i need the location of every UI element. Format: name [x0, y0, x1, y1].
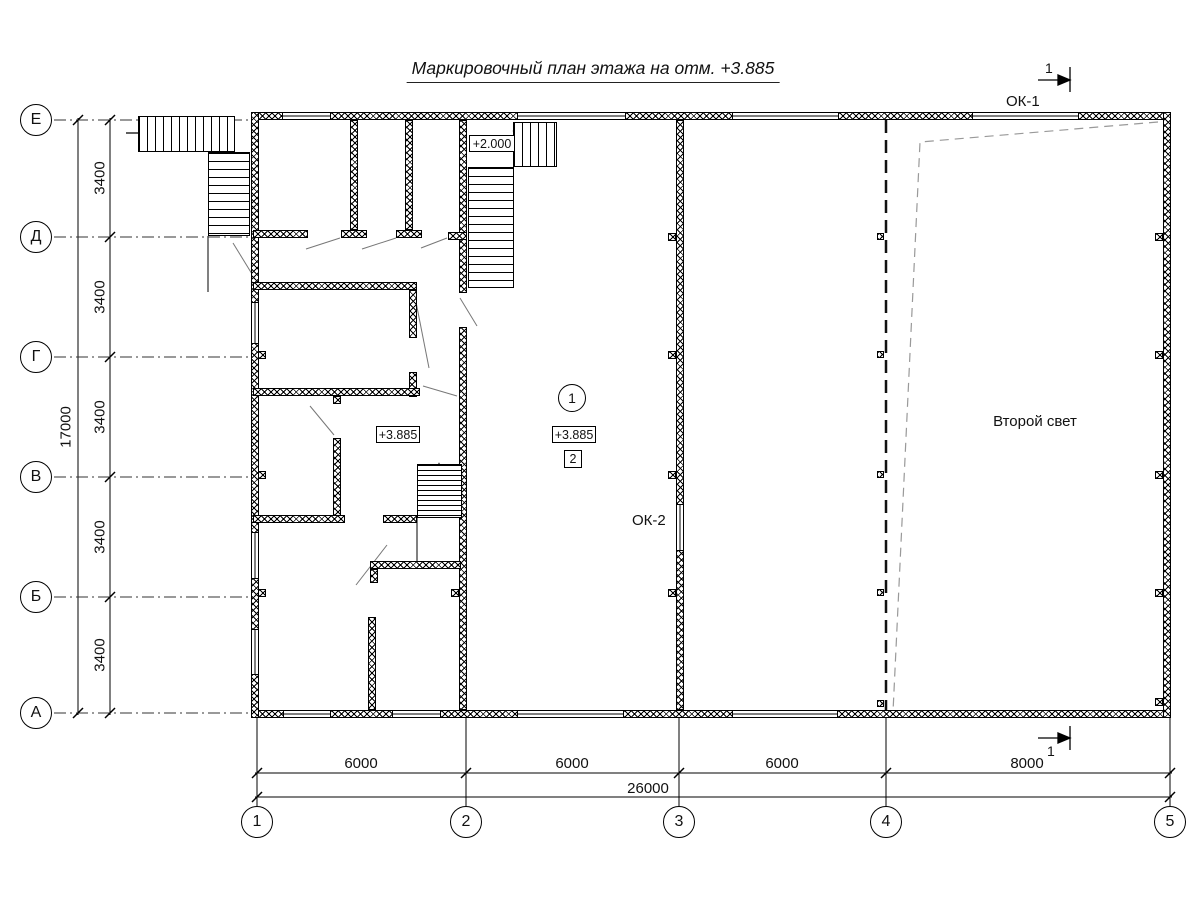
central-stair-flight: [417, 464, 462, 518]
partition-wall: [333, 438, 341, 516]
wall-segment: [253, 230, 308, 238]
axis-row-bubble-d: Д: [20, 221, 52, 253]
window-opening: [251, 630, 259, 674]
column-flange: [668, 233, 676, 241]
second-light-label: Второй свет: [993, 413, 1077, 430]
section-number-top: 1: [1045, 60, 1053, 76]
window-ok1-opening: [973, 112, 1078, 120]
window-opening: [518, 710, 623, 718]
wall-segment: [1078, 112, 1171, 120]
room-number-box: 2: [564, 450, 582, 468]
room-number-circle: 1: [558, 384, 586, 412]
wall-stub: [396, 230, 422, 238]
window-opening: [518, 112, 625, 120]
wall-segment: [459, 327, 467, 710]
window-opening: [283, 112, 330, 120]
section-mark-top: [1038, 67, 1070, 92]
level-label-2000: +2.000: [469, 135, 515, 152]
wall-segment: [330, 112, 518, 120]
axis-row-bubble-b: Б: [20, 581, 52, 613]
page-title: Маркировочный план этажа на отм. +3.885: [407, 58, 780, 83]
wall-segment: [837, 710, 1171, 718]
column-flange: [1155, 698, 1163, 706]
dim-row-spacing: 3400: [92, 280, 109, 313]
axis-col-bubble-3: 3: [663, 806, 695, 838]
partition-wall: [370, 561, 461, 569]
wall-segment: [676, 550, 684, 710]
wall-segment: [251, 578, 259, 630]
column-flange: [258, 351, 266, 359]
partition-wall: [405, 120, 413, 230]
column-flange: [451, 589, 459, 597]
wall-segment: [251, 343, 259, 533]
wall-stub: [370, 569, 378, 583]
wall-segment: [625, 112, 733, 120]
partition-wall: [253, 282, 417, 290]
level-label-3885-center: +3.885: [552, 426, 596, 443]
column-flange: [877, 589, 884, 596]
floor-plan-drawing: Маркировочный план этажа на отм. +3.885: [0, 0, 1200, 900]
wall-stub: [341, 230, 367, 238]
wall-stub: [448, 232, 467, 240]
axis-col-bubble-1: 1: [241, 806, 273, 838]
wall-segment: [623, 710, 733, 718]
column-flange: [877, 471, 884, 478]
wall-segment: [440, 710, 518, 718]
column-flange: [258, 471, 266, 479]
axis-row-bubble-a: А: [20, 697, 52, 729]
stair-2-main-flight: [468, 167, 514, 288]
wall-segment: [838, 112, 973, 120]
window-opening: [284, 710, 330, 718]
column-flange: [1155, 471, 1163, 479]
window-opening: [393, 710, 440, 718]
window-opening: [733, 112, 838, 120]
column-flange: [668, 471, 676, 479]
axis-row-bubble-v: В: [20, 461, 52, 493]
dim-col-spacing: 6000: [555, 755, 588, 772]
level-label-3885-left: +3.885: [376, 426, 420, 443]
window-opening: [733, 710, 837, 718]
wall-stub: [333, 396, 341, 404]
section-arrow-icon: [1058, 75, 1070, 85]
column-flange: [877, 233, 884, 240]
column-flange: [258, 589, 266, 597]
window-ok2-opening: [676, 505, 684, 550]
stair-2-upper-flight: [513, 122, 557, 167]
partition-wall: [368, 617, 376, 710]
dim-rows-total: 17000: [58, 406, 75, 448]
wall-segment: [1163, 112, 1171, 718]
dim-row-spacing: 3400: [92, 400, 109, 433]
column-flange: [1155, 589, 1163, 597]
wall-segment: [251, 112, 259, 303]
column-flange: [877, 351, 884, 358]
wall-segment: [459, 120, 467, 293]
ok2-label: ОК-2: [632, 512, 666, 529]
section-number-bottom: 1: [1047, 743, 1055, 759]
dim-row-spacing: 3400: [92, 520, 109, 553]
dim-row-spacing: 3400: [92, 638, 109, 671]
section-arrow-icon: [1058, 733, 1070, 743]
column-flange: [877, 700, 884, 707]
axis-col-bubble-5: 5: [1154, 806, 1186, 838]
column-flange: [1155, 233, 1163, 241]
partition-wall: [350, 120, 358, 230]
exterior-stair-lower-flight: [208, 152, 250, 236]
column-flange: [668, 589, 676, 597]
partition-wall: [253, 515, 345, 523]
wall-segment: [251, 674, 259, 718]
exterior-stair-upper-flight: [138, 116, 235, 152]
door-swing-lines: [233, 238, 477, 585]
column-flange: [668, 351, 676, 359]
column-flange: [1155, 351, 1163, 359]
wall-segment: [330, 710, 393, 718]
axis-col-bubble-2: 2: [450, 806, 482, 838]
dim-col-spacing: 6000: [344, 755, 377, 772]
wall-stub: [383, 515, 417, 523]
ok1-label: ОК-1: [1006, 93, 1040, 110]
axis-row-bubble-g: Г: [20, 341, 52, 373]
window-opening: [251, 533, 259, 578]
axis-row-bubble-e: Е: [20, 104, 52, 136]
dim-row-spacing: 3400: [92, 161, 109, 194]
dim-cols-total: 26000: [627, 780, 669, 797]
partition-wall: [409, 290, 417, 338]
door-opening: [251, 303, 259, 343]
wall-segment: [676, 120, 684, 505]
axis-col-bubble-4: 4: [870, 806, 902, 838]
dim-col-spacing: 6000: [765, 755, 798, 772]
dim-col-spacing: 8000: [1010, 755, 1043, 772]
partition-wall: [253, 388, 420, 396]
